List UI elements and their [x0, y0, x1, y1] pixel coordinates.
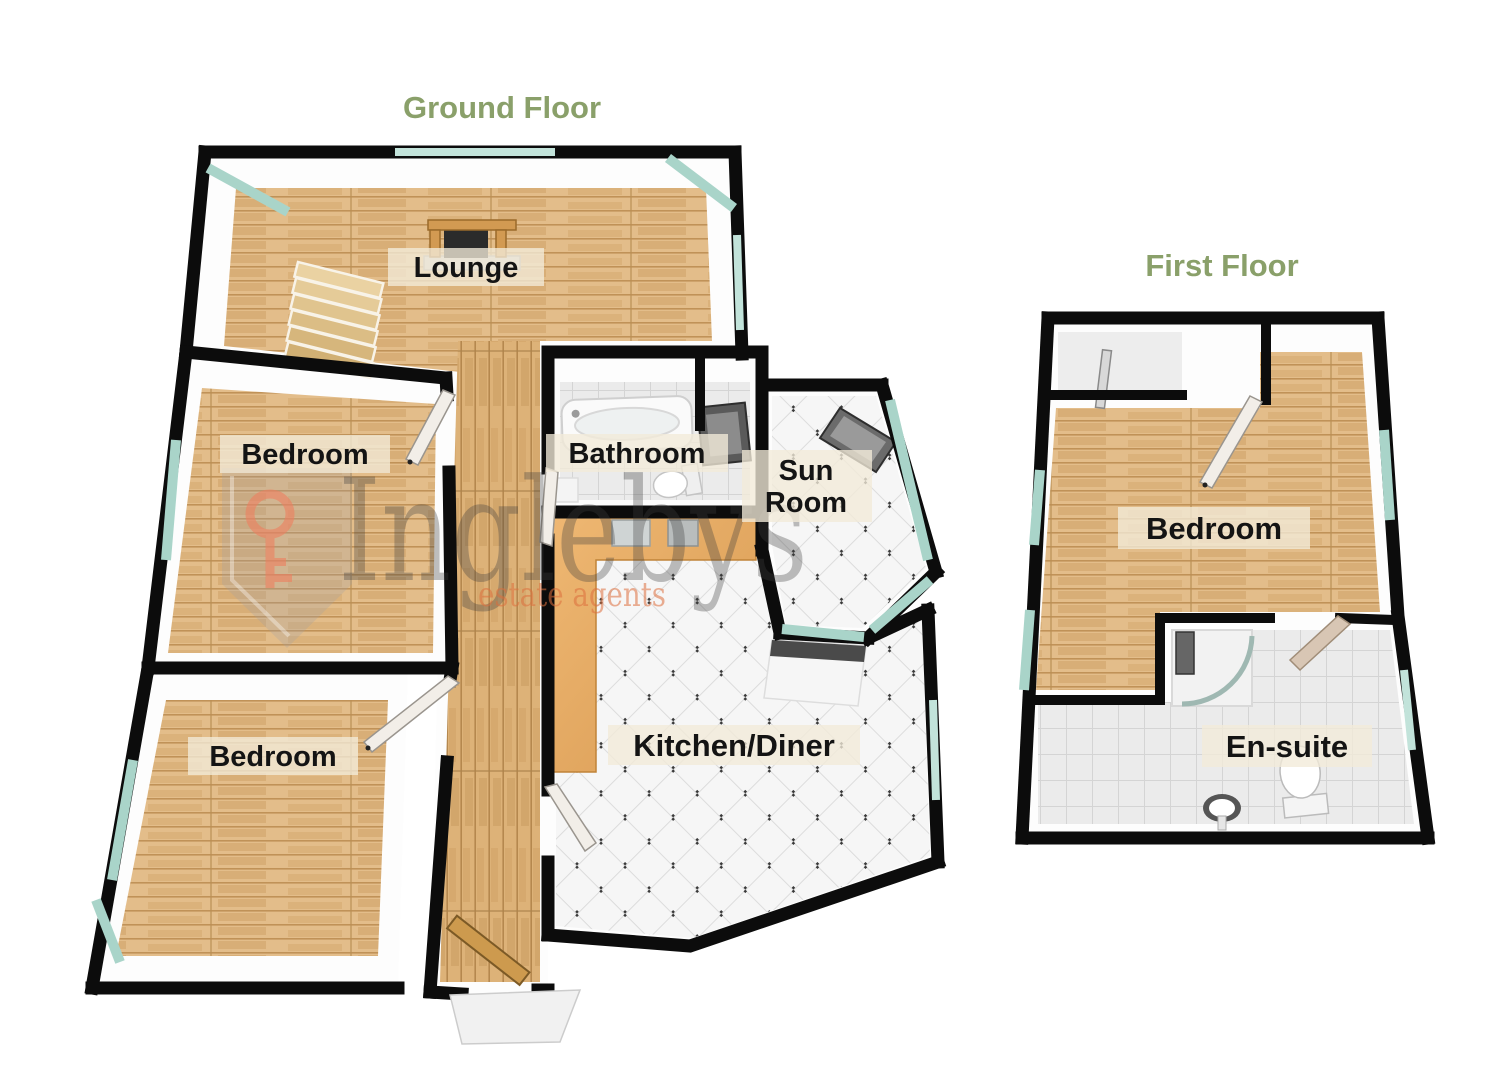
bedroom-middle-label: Bedroom: [241, 439, 368, 471]
kitchen-window: [933, 700, 936, 800]
floorplan-canvas: Inglebys estate agents: [0, 0, 1485, 1080]
entrance-porch: [450, 990, 580, 1044]
bathroom-label: Bathroom: [569, 438, 706, 470]
watermark-tagline: estate agents: [478, 575, 666, 615]
lounge-right-window: [737, 235, 740, 330]
door-knob: [1203, 483, 1208, 488]
door-knob: [366, 746, 371, 751]
alcove-floor: [1058, 332, 1182, 390]
bedroom-lower-label: Bedroom: [209, 741, 336, 773]
ff-window-left-1: [1034, 470, 1040, 545]
ground-floor-title: Ground Floor: [403, 90, 601, 125]
ff-window-left-2: [1024, 610, 1030, 690]
lounge-label: Lounge: [414, 252, 519, 284]
ensuite-label: En-suite: [1226, 729, 1348, 764]
ensuite-shower: [1172, 630, 1252, 706]
ff-window-right-1: [1384, 430, 1390, 520]
ff-bedroom-label: Bedroom: [1146, 511, 1282, 546]
kitchen-label: Kitchen/Diner: [633, 728, 835, 763]
floorplan-page: Inglebys estate agents: [0, 0, 1485, 1080]
first-floor-title: First Floor: [1145, 248, 1298, 283]
